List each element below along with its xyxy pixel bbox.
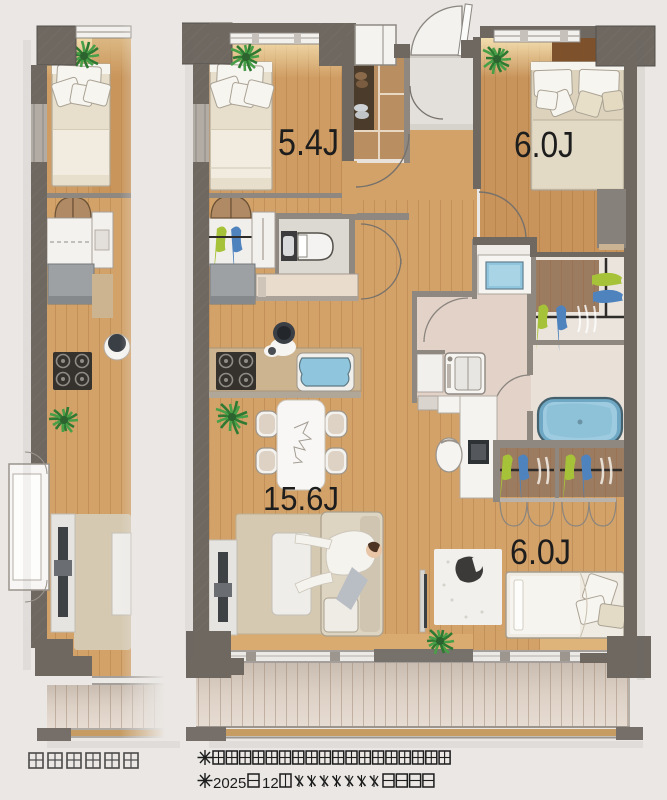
svg-text:6.0J: 6.0J xyxy=(510,533,571,572)
svg-text:2025: 2025 xyxy=(213,775,246,792)
svg-text:15.6J: 15.6J xyxy=(263,480,339,517)
svg-text:12: 12 xyxy=(262,775,279,792)
svg-text:6.0J: 6.0J xyxy=(514,124,574,165)
svg-text:5.4J: 5.4J xyxy=(278,122,339,163)
